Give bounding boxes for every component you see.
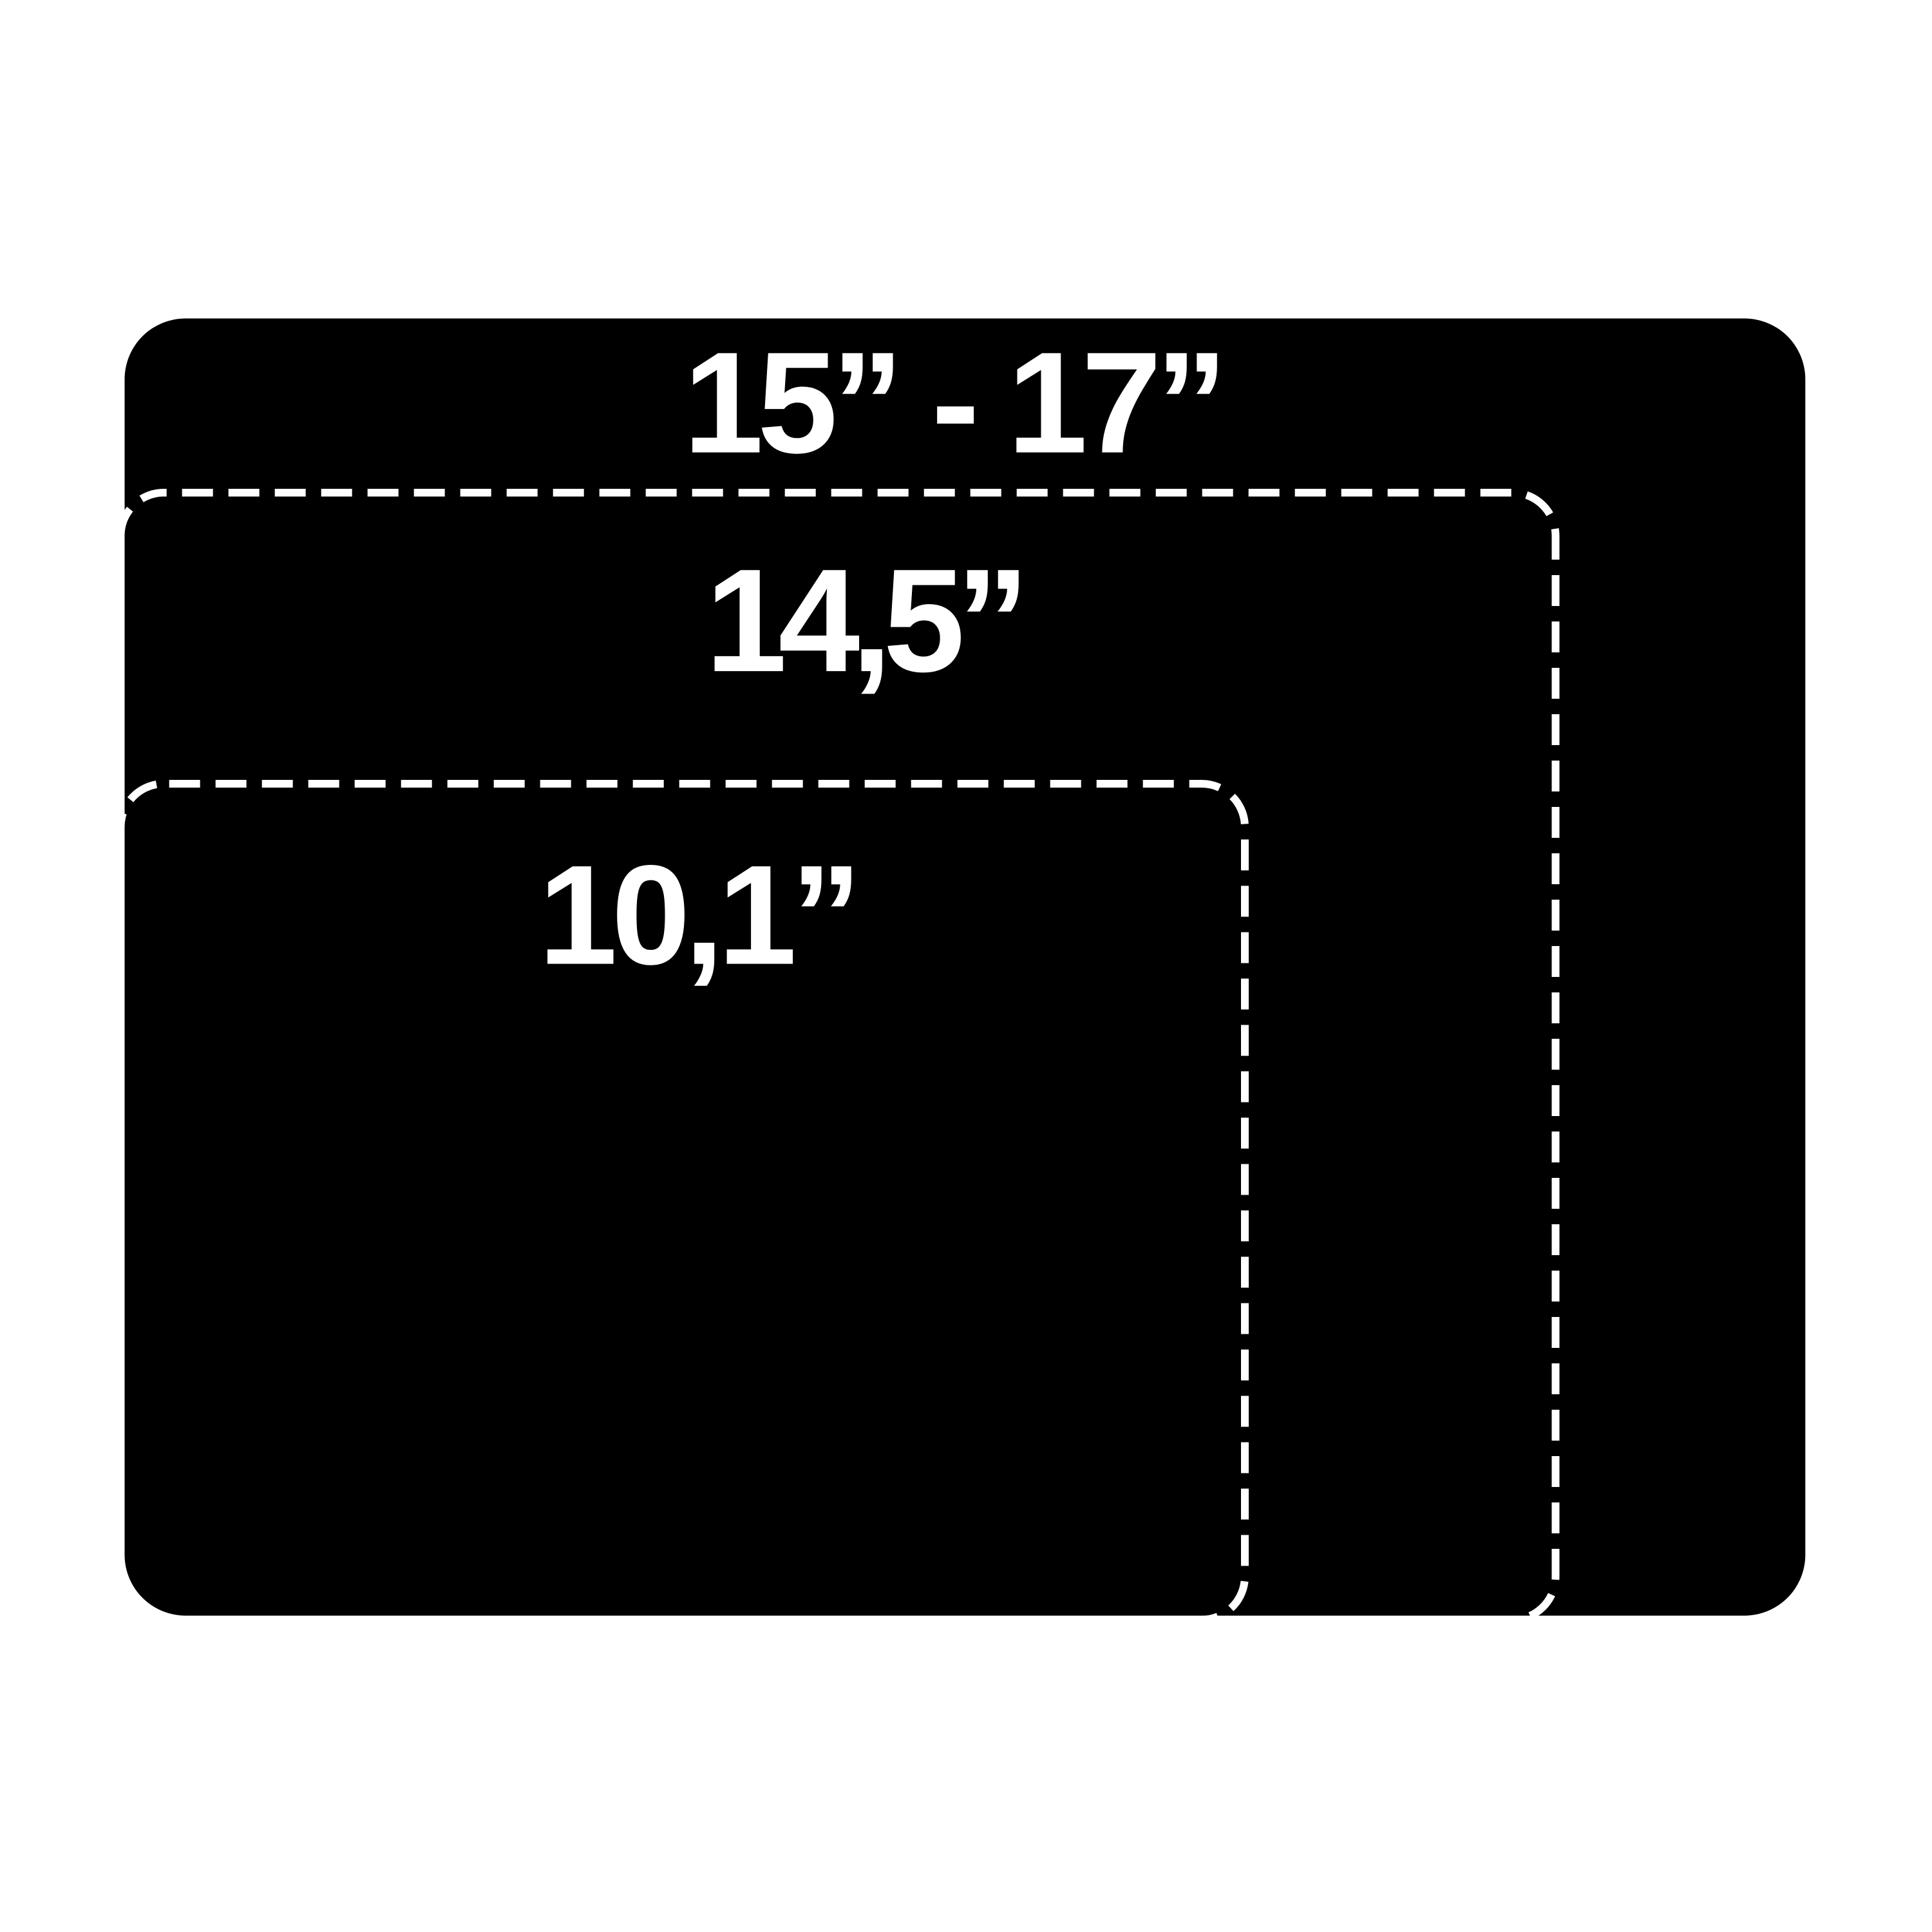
svg-text:10,1”: 10,1” — [538, 836, 856, 994]
svg-text:15” - 17”: 15” - 17” — [683, 323, 1222, 484]
svg-text:14,5”: 14,5” — [705, 539, 1021, 703]
